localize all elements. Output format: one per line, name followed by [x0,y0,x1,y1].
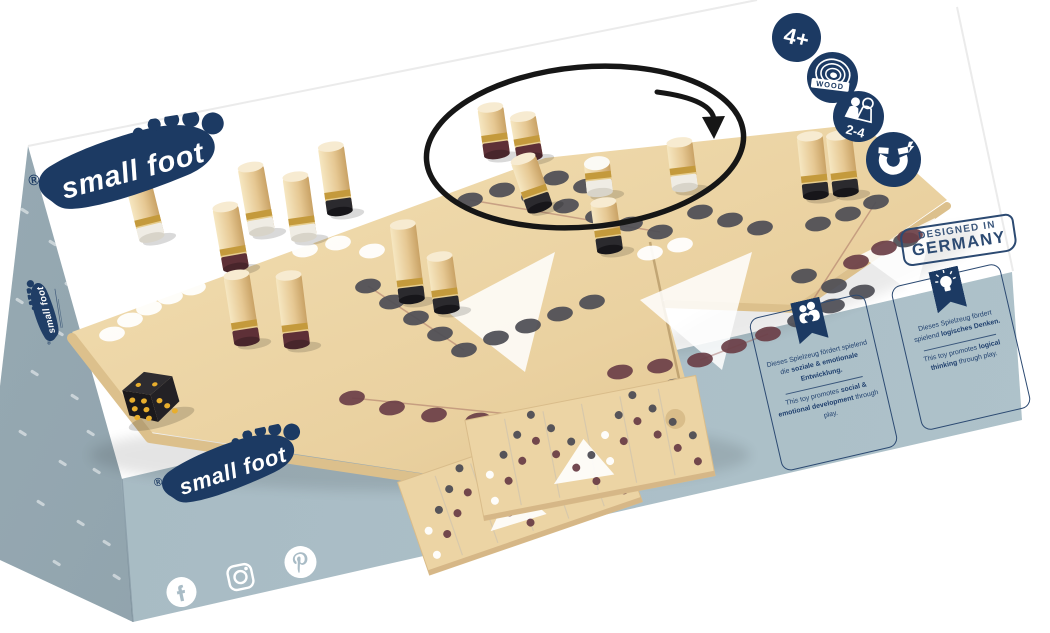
game-board-scene [0,0,1050,633]
box-corner-edge [122,479,133,622]
svg-text:WOOD: WOOD [816,79,845,91]
family-heart-icon [790,297,829,345]
wooden-peg [317,138,365,221]
hand-drawn-arrow [657,92,714,120]
age-badge-label: 4+ [781,22,812,53]
hand-drawn-arrow-head [702,116,725,139]
product-photo-stage: ® small foot ® small foot ® small foot [0,0,1050,633]
wooden-peg [282,168,329,247]
svg-text:2-4: 2-4 [845,121,868,140]
lightbulb-icon [928,266,967,314]
